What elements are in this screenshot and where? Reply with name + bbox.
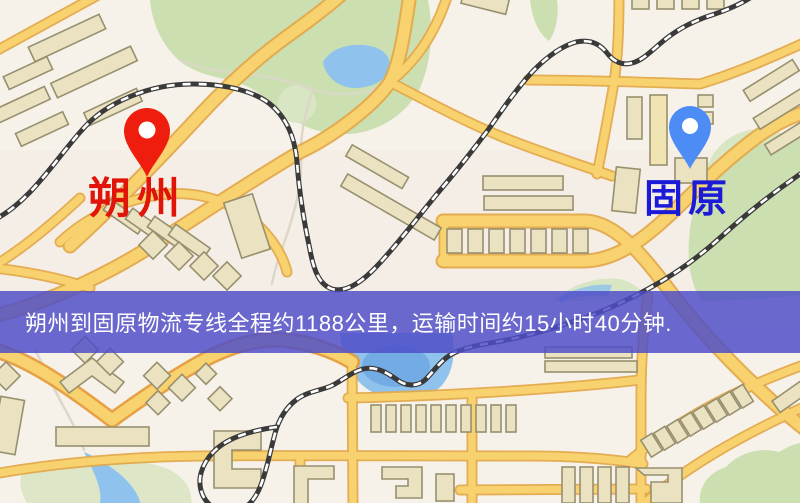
map-image	[0, 0, 800, 503]
origin-city-label: 朔州	[88, 178, 186, 221]
origin-pin-hole	[139, 122, 156, 139]
route-banner-text: 朔州到固原物流专线全程约1188公里，运输时间约15小时40分钟.	[25, 306, 672, 338]
map-screenshot: 朔州 固原 朔州到固原物流专线全程约1188公里，运输时间约15小时40分钟.	[0, 0, 800, 503]
destination-city-label: 固原	[644, 180, 732, 219]
destination-pin-hole	[682, 118, 698, 134]
route-banner: 朔州到固原物流专线全程约1188公里，运输时间约15小时40分钟.	[0, 291, 800, 353]
